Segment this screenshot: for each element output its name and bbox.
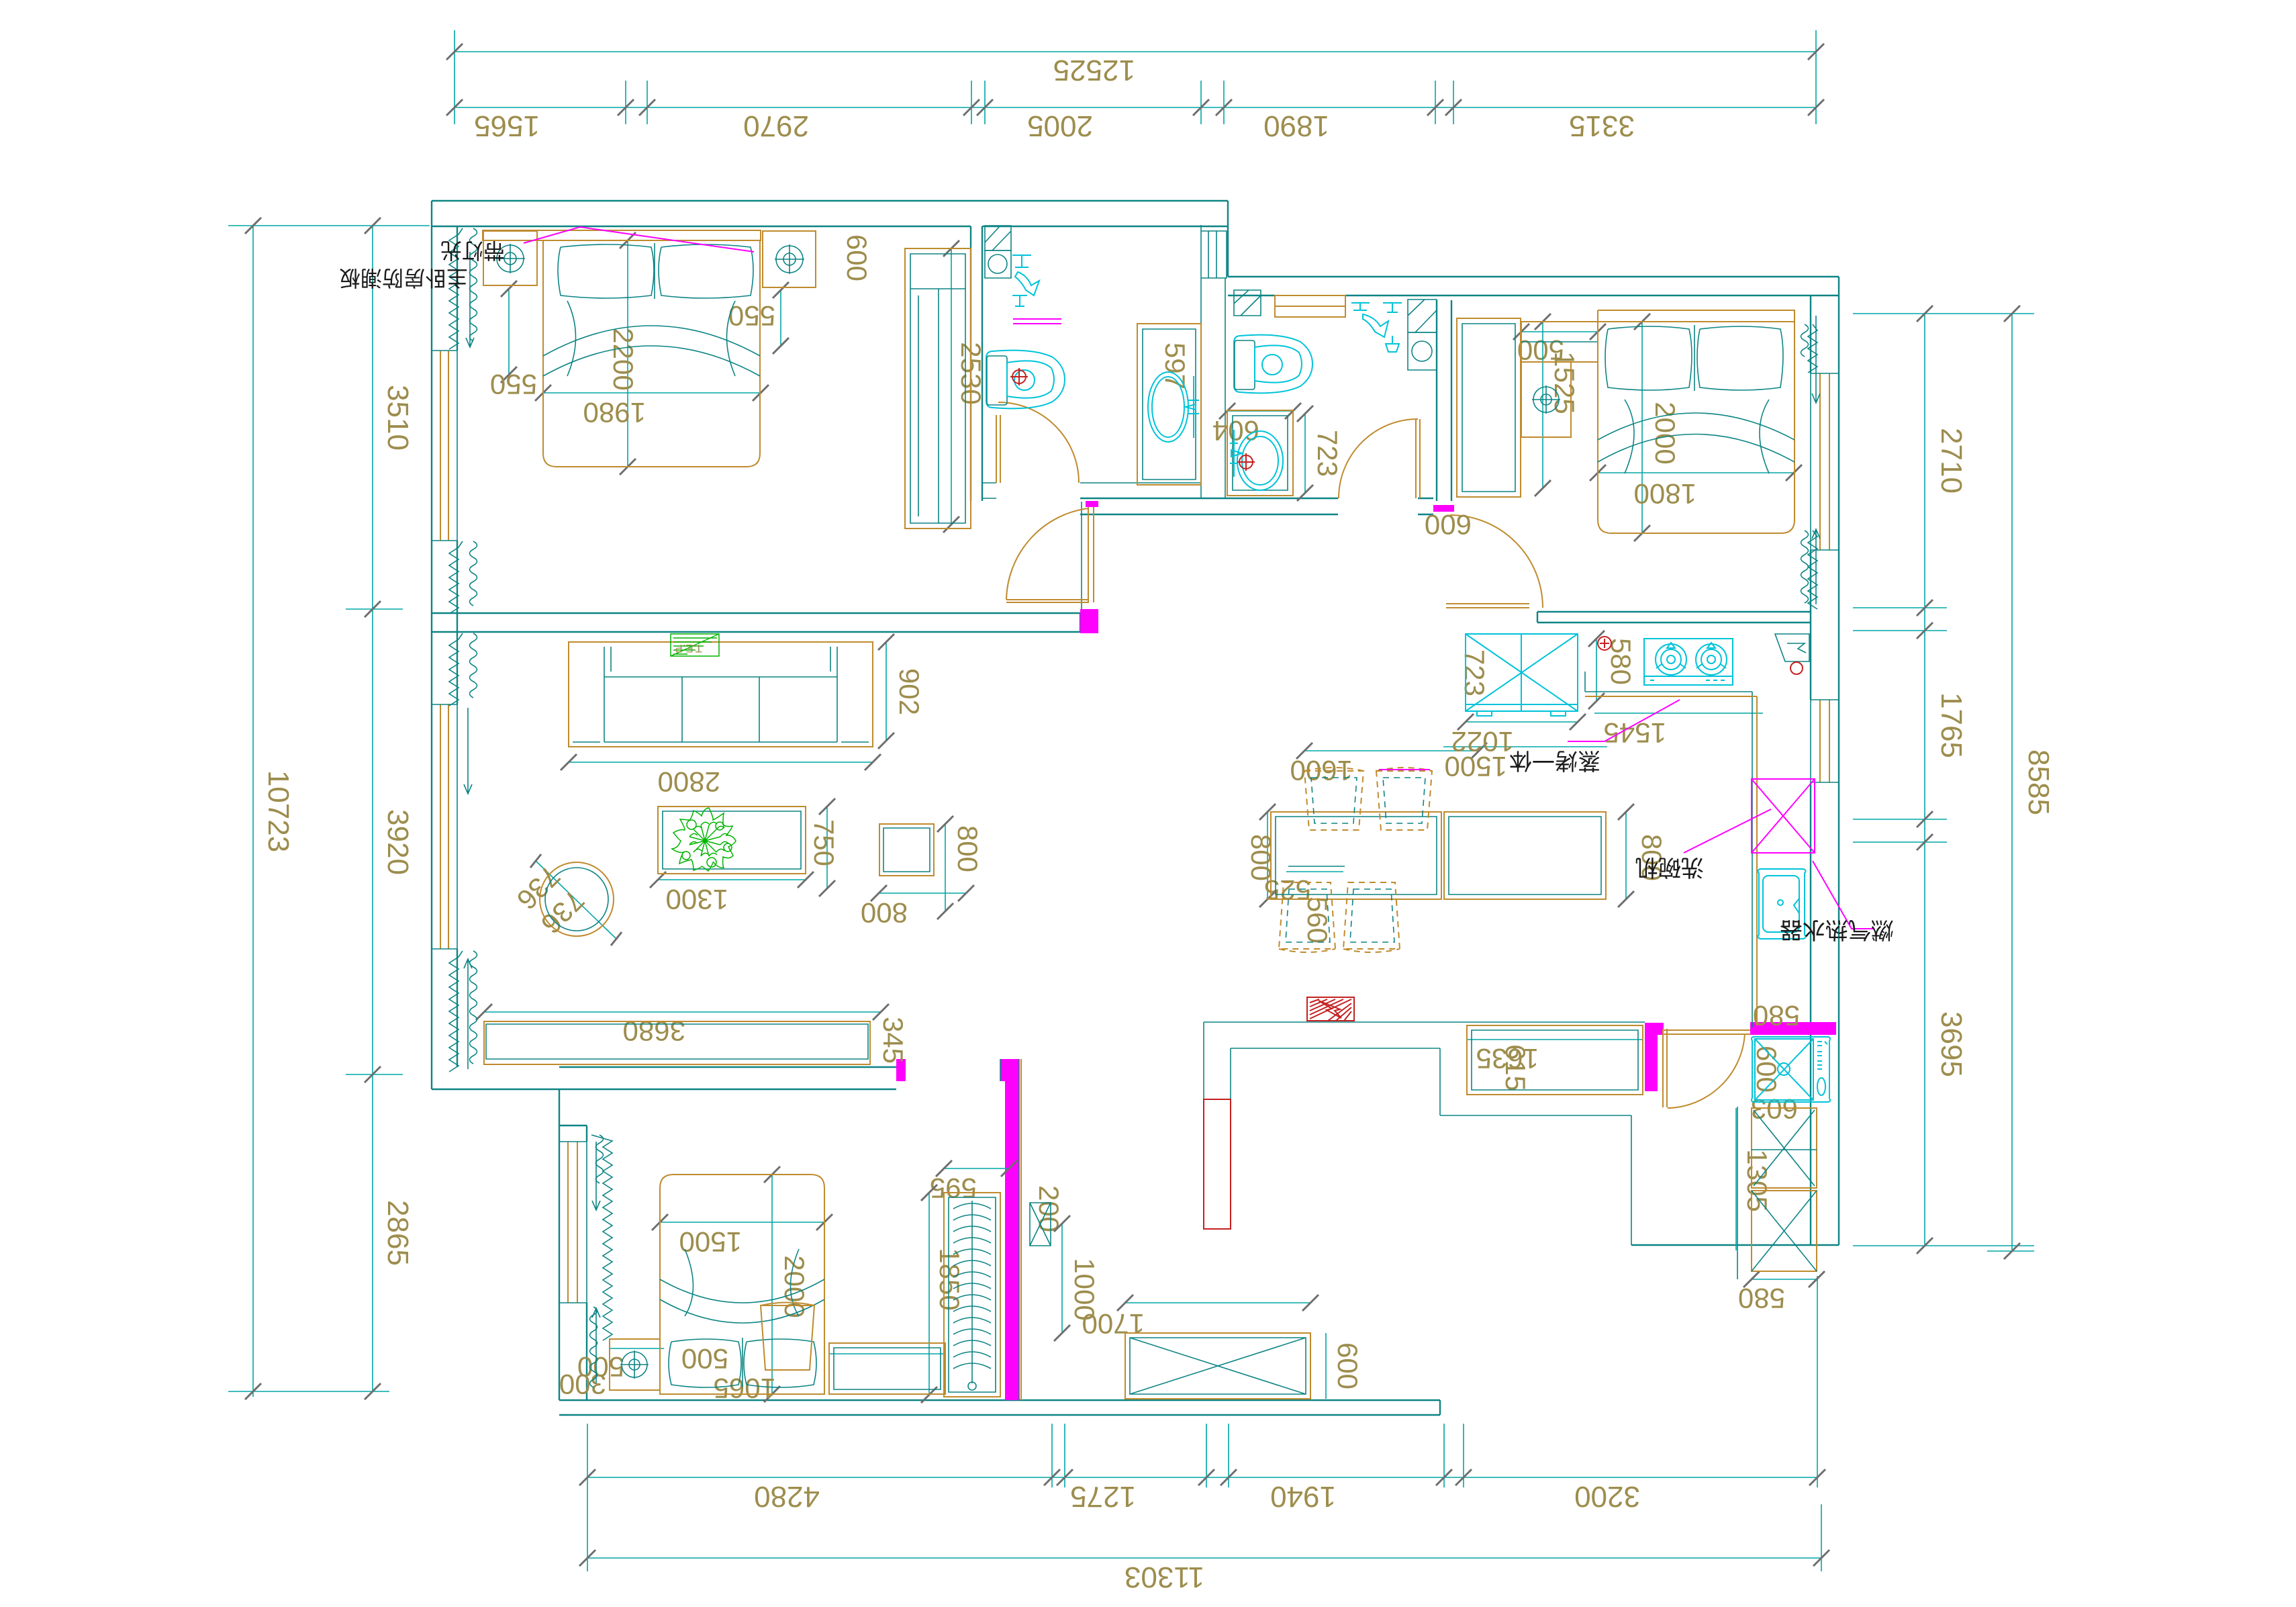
svg-text:1545: 1545 xyxy=(1604,717,1666,749)
svg-text:1980: 1980 xyxy=(583,397,646,428)
svg-text:3315: 3315 xyxy=(1569,109,1635,142)
svg-text:1525: 1525 xyxy=(1549,351,1580,414)
svg-text:1765: 1765 xyxy=(1935,692,1968,758)
svg-text:345: 345 xyxy=(877,1017,909,1064)
svg-text:3695: 3695 xyxy=(1935,1011,1968,1077)
svg-text:燃气热水器: 燃气热水器 xyxy=(1780,917,1894,942)
svg-text:11303: 11303 xyxy=(1125,1561,1204,1594)
svg-text:600: 600 xyxy=(1425,509,1472,541)
svg-text:3920: 3920 xyxy=(381,809,414,875)
svg-text:597: 597 xyxy=(1159,342,1191,389)
svg-text:550: 550 xyxy=(728,300,775,332)
svg-text:2000: 2000 xyxy=(1649,402,1681,464)
svg-text:1565: 1565 xyxy=(474,109,540,142)
svg-text:10723: 10723 xyxy=(262,770,295,852)
svg-text:1700: 1700 xyxy=(1082,1308,1145,1340)
svg-text:2200: 2200 xyxy=(608,328,639,390)
svg-text:3680: 3680 xyxy=(623,1015,685,1047)
svg-text:1600: 1600 xyxy=(1290,755,1353,786)
svg-text:580: 580 xyxy=(1605,638,1637,685)
svg-text:550: 550 xyxy=(490,369,537,400)
svg-text:604: 604 xyxy=(1212,415,1259,447)
svg-text:600: 600 xyxy=(841,234,873,281)
svg-text:902: 902 xyxy=(894,668,925,715)
svg-text:1275: 1275 xyxy=(1070,1480,1136,1513)
svg-text:615: 615 xyxy=(1500,1044,1531,1091)
svg-text:600: 600 xyxy=(1332,1342,1364,1389)
svg-text:2970: 2970 xyxy=(743,109,809,142)
svg-text:3510: 3510 xyxy=(381,385,414,451)
svg-text:1300: 1300 xyxy=(666,884,728,915)
svg-text:300: 300 xyxy=(559,1369,606,1400)
svg-text:723: 723 xyxy=(1459,649,1490,696)
svg-text:723: 723 xyxy=(1312,430,1343,477)
svg-text:580: 580 xyxy=(1753,1000,1800,1031)
svg-text:603: 603 xyxy=(1751,1093,1798,1125)
svg-text:8585: 8585 xyxy=(2022,749,2055,815)
svg-text:1800: 1800 xyxy=(1634,478,1696,510)
svg-text:595: 595 xyxy=(930,1173,977,1204)
svg-text:带灯光: 带灯光 xyxy=(440,238,505,263)
svg-text:1940: 1940 xyxy=(1270,1480,1336,1513)
svg-text:2800: 2800 xyxy=(658,766,720,798)
svg-text:800: 800 xyxy=(952,825,984,872)
svg-text:800: 800 xyxy=(1245,834,1277,881)
svg-text:1890: 1890 xyxy=(1263,109,1329,142)
svg-text:580: 580 xyxy=(1738,1283,1785,1314)
svg-text:1022: 1022 xyxy=(1451,726,1514,757)
svg-text:2865: 2865 xyxy=(381,1200,414,1266)
svg-text:4280: 4280 xyxy=(754,1480,820,1513)
svg-text:12525: 12525 xyxy=(1053,54,1135,87)
svg-text:3200: 3200 xyxy=(1574,1480,1640,1513)
svg-text:2005: 2005 xyxy=(1027,109,1093,142)
svg-text:蒸烤一体: 蒸烤一体 xyxy=(1509,747,1600,773)
svg-text:1850: 1850 xyxy=(934,1248,965,1310)
svg-text:750: 750 xyxy=(808,819,840,866)
svg-text:500: 500 xyxy=(681,1343,728,1375)
svg-text:T.E.P: T.E.P xyxy=(675,642,702,655)
svg-text:2710: 2710 xyxy=(1935,428,1968,494)
svg-text:1500: 1500 xyxy=(679,1226,742,1258)
svg-text:洗碗机: 洗碗机 xyxy=(1635,854,1704,880)
svg-text:主卧房防潮板: 主卧房防潮板 xyxy=(339,266,468,290)
svg-text:800: 800 xyxy=(861,897,908,929)
